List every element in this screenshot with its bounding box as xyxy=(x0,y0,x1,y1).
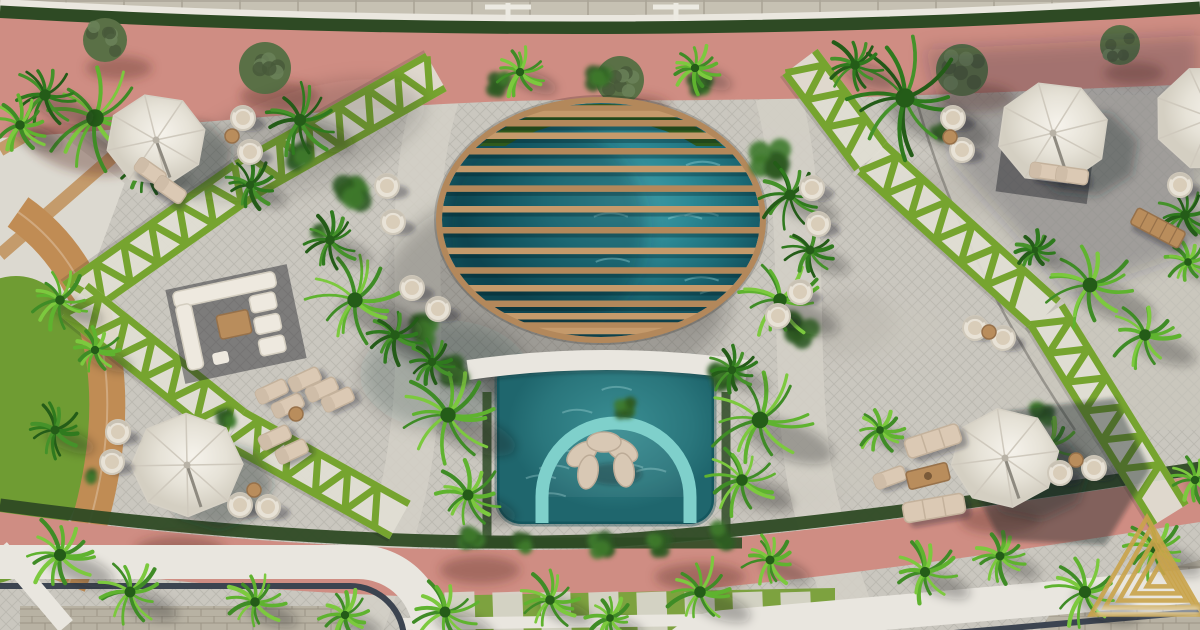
parasol xyxy=(131,413,243,516)
side-table xyxy=(225,129,239,143)
side-table xyxy=(982,325,996,339)
wicker-chair xyxy=(806,212,830,236)
shrub xyxy=(587,531,615,559)
wicker-chair xyxy=(228,493,252,517)
hedge-tree xyxy=(239,42,291,94)
watermark-text xyxy=(1096,606,1200,615)
wicker-chair xyxy=(1168,173,1192,197)
road-shadow xyxy=(440,556,520,584)
side-table xyxy=(289,407,303,421)
wicker-chair xyxy=(766,304,790,328)
wicker-chair xyxy=(231,106,255,130)
wicker-chair xyxy=(100,450,124,474)
wicker-chair xyxy=(1048,461,1072,485)
side-table xyxy=(1069,453,1083,467)
pergola-pavilion xyxy=(435,96,767,344)
shrub xyxy=(614,397,637,420)
wicker-chair xyxy=(106,420,130,444)
hedge-tree xyxy=(83,18,127,62)
wicker-chair xyxy=(256,495,280,519)
aerial-render-courtyard xyxy=(0,0,1200,630)
wicker-chair xyxy=(1082,456,1106,480)
side-table xyxy=(943,130,957,144)
wicker-chair xyxy=(375,174,399,198)
wicker-chair xyxy=(800,176,824,200)
scene-svg xyxy=(0,0,1200,630)
wicker-chair xyxy=(381,210,405,234)
wicker-chair xyxy=(941,106,965,130)
side-table xyxy=(247,483,261,497)
wicker-chair xyxy=(238,140,262,164)
wicker-chair xyxy=(788,280,812,304)
pool-bridge xyxy=(468,360,747,370)
wicker-chair xyxy=(400,276,424,300)
wicker-chair xyxy=(426,297,450,321)
